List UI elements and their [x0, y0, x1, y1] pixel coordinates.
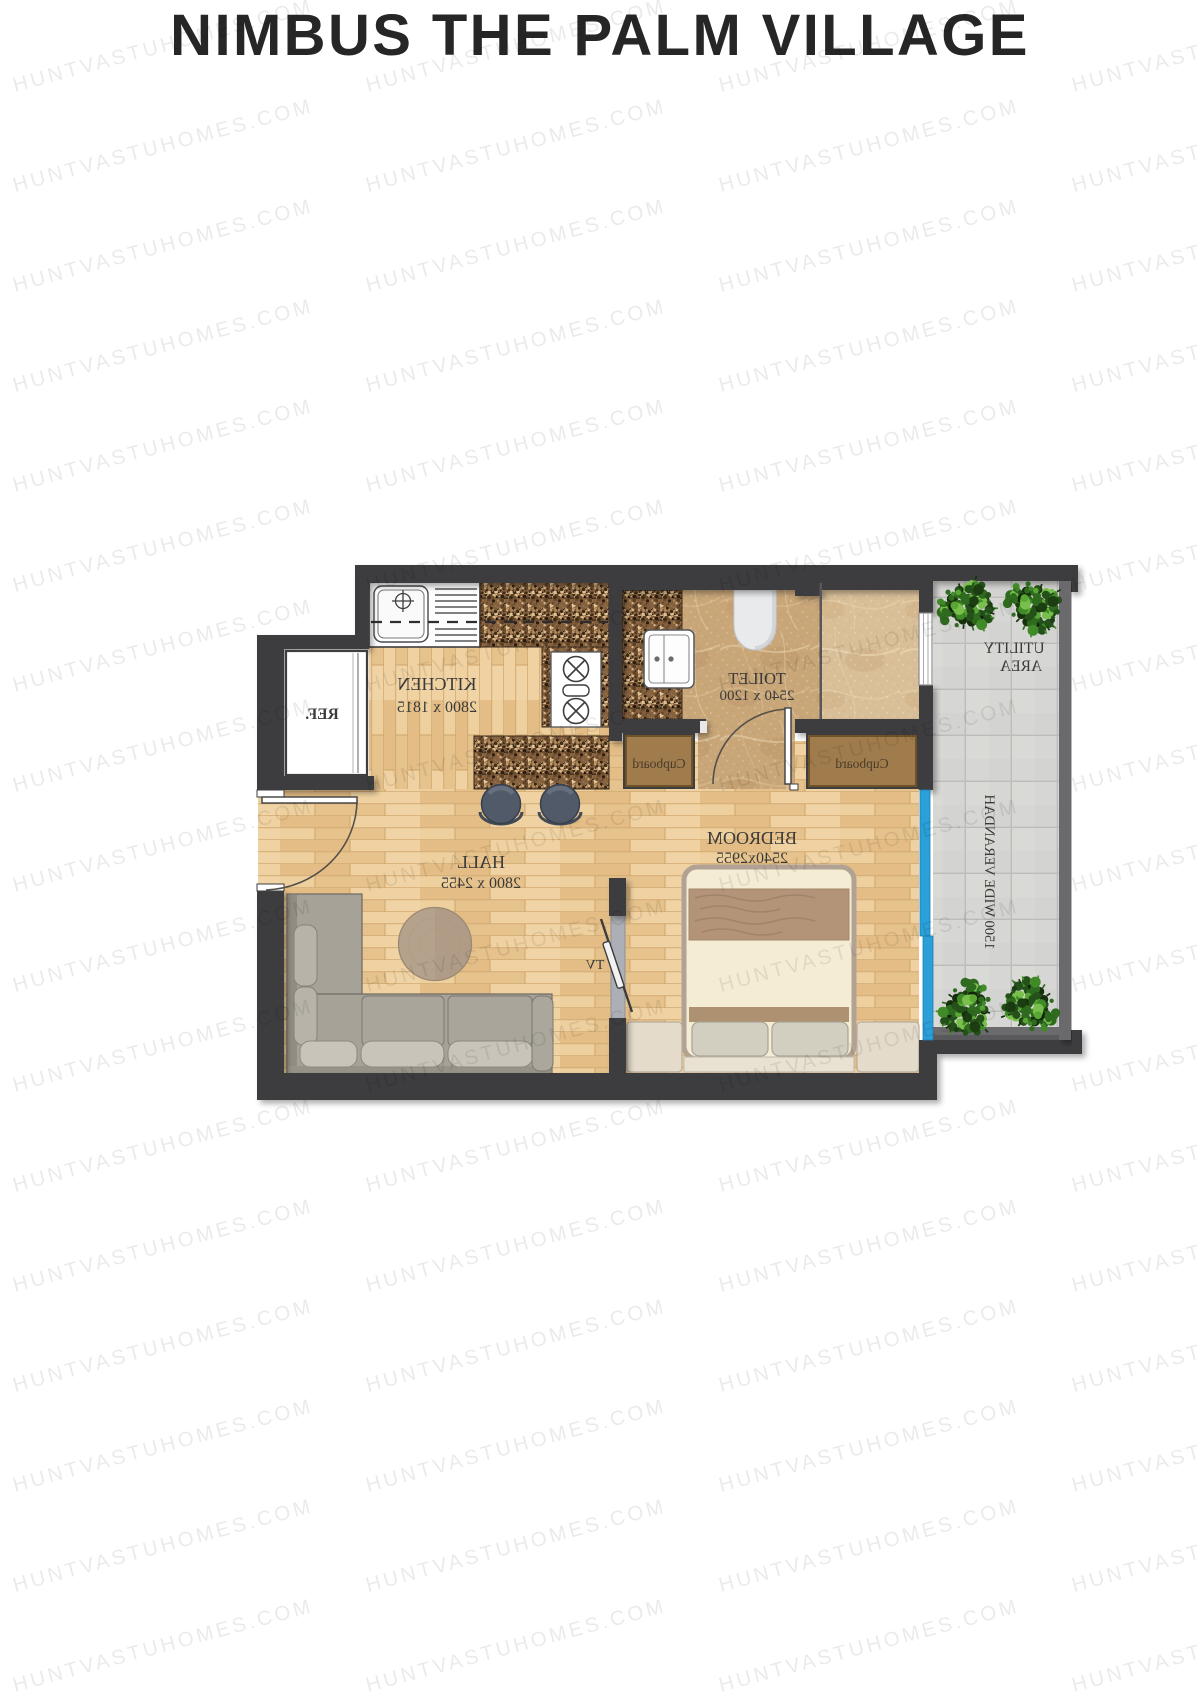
svg-text:TV: TV	[586, 958, 605, 973]
svg-text:AREA: AREA	[999, 658, 1042, 675]
svg-text:2800 x 2455: 2800 x 2455	[441, 875, 521, 892]
svg-text:Cupboard: Cupboard	[632, 756, 685, 771]
svg-text:UTILITY: UTILITY	[983, 640, 1044, 657]
svg-text:BEDROOM: BEDROOM	[707, 828, 797, 848]
svg-text:2800 x 1815: 2800 x 1815	[397, 699, 477, 716]
